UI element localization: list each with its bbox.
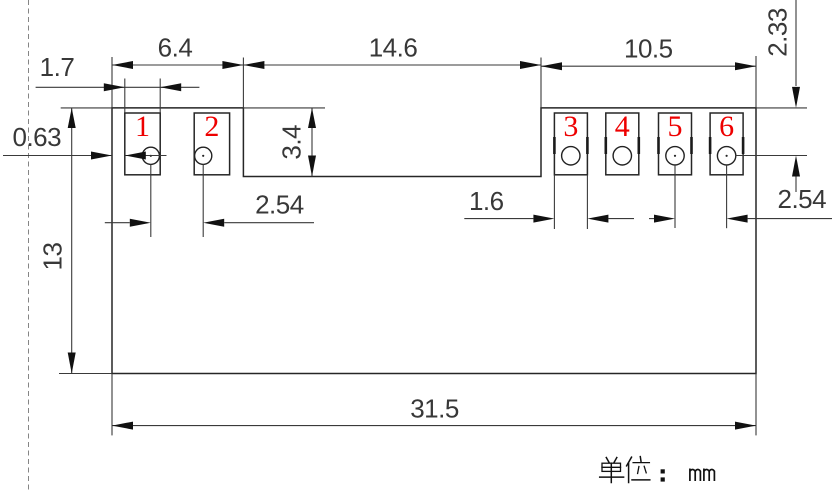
svg-text:6.4: 6.4 [158,33,193,63]
svg-text:14.6: 14.6 [369,33,418,63]
svg-text:3.4: 3.4 [277,125,307,160]
svg-text:2: 2 [204,110,219,143]
svg-text:31.5: 31.5 [410,393,459,423]
svg-text:0.63: 0.63 [12,122,61,152]
svg-text:5: 5 [668,110,683,143]
svg-text:13: 13 [38,243,68,271]
svg-text:1.6: 1.6 [469,186,504,216]
svg-text:2.33: 2.33 [762,8,792,57]
svg-text:3: 3 [563,110,578,143]
svg-text:2.54: 2.54 [255,190,304,220]
svg-text:6: 6 [719,110,734,143]
svg-text:1.7: 1.7 [40,52,75,82]
svg-text:10.5: 10.5 [624,34,673,64]
svg-text:4: 4 [615,110,630,143]
svg-text:1: 1 [135,110,150,143]
svg-text:2.54: 2.54 [777,184,826,214]
